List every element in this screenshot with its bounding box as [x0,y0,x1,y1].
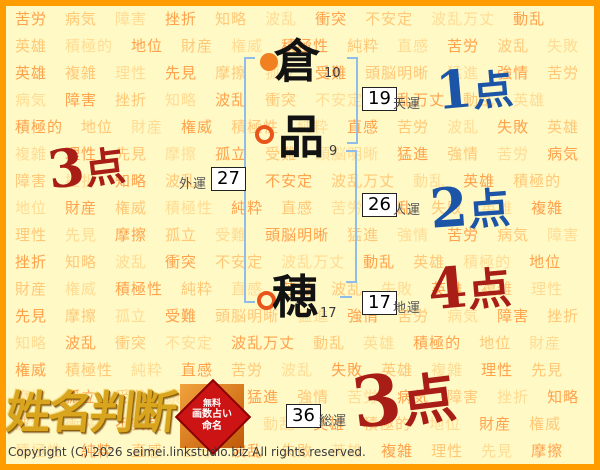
stroke-count-3: 17 [320,306,337,321]
stroke-count-2: 9 [329,144,337,159]
jinun-bracket [346,150,357,283]
souun-score: 3点 [349,360,459,435]
free-naming-stamp-badge[interactable]: 無料 画数占い 命名 [180,384,244,448]
tenun-bracket [347,57,358,144]
tenun-label: 天運 [393,93,421,112]
chiun-score: 4点 [426,258,513,315]
stamp-text: 無料 画数占い 命名 [180,384,244,448]
seimei-handan-result-page: 苦労病気障害挫折知略波乱衝突不安定波乱万丈動乱英雄積極的地位財産権威積極性純粋直… [0,0,600,470]
chiun-label: 地運 [393,297,421,316]
stroke-count-1: 10 [324,66,341,81]
gaiun-score: 3点 [45,139,127,195]
chiun-tick [340,296,352,298]
site-logo[interactable]: 姓名判断 [4,390,177,435]
tenun-score: 1点 [434,63,515,116]
copyright-text: Copyright (C) 2026 seimei.linkstudio.biz… [8,445,366,459]
jinun-value-box: 26 [362,193,397,217]
name-char-2: 品 [278,114,324,160]
tenun-value-box: 19 [362,87,397,111]
gaiun-label: 外運 [179,173,207,192]
name-char-1: 倉 [274,38,320,84]
chiun-value-box: 17 [362,291,397,315]
jinun-score: 2点 [428,179,511,233]
gaiun-value-box: 27 [211,167,246,191]
name-char-3: 穂 [272,274,318,320]
open-circle-icon [255,125,274,144]
souun-value-box: 36 [286,404,321,428]
jinun-label: 人運 [393,199,421,218]
souun-label: 総運 [319,410,347,429]
